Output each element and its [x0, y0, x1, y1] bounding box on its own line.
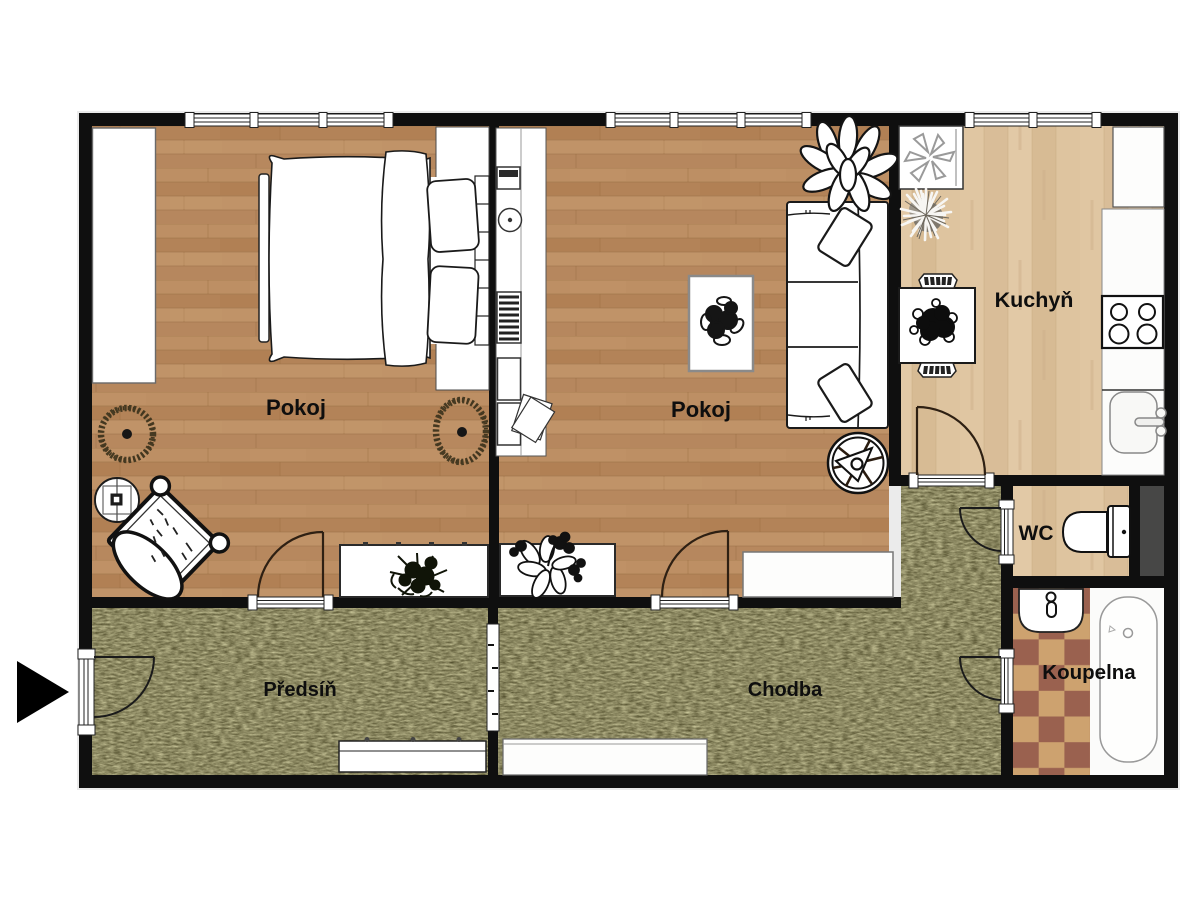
svg-text:Koupelna: Koupelna: [1042, 661, 1136, 684]
svg-text:Pokoj: Pokoj: [671, 397, 731, 422]
svg-text:Kuchyň: Kuchyň: [995, 288, 1074, 312]
svg-text:WC: WC: [1019, 522, 1054, 545]
svg-text:Chodba: Chodba: [748, 679, 823, 701]
svg-text:Pokoj: Pokoj: [266, 395, 326, 420]
svg-text:Předsíň: Předsíň: [263, 679, 336, 701]
